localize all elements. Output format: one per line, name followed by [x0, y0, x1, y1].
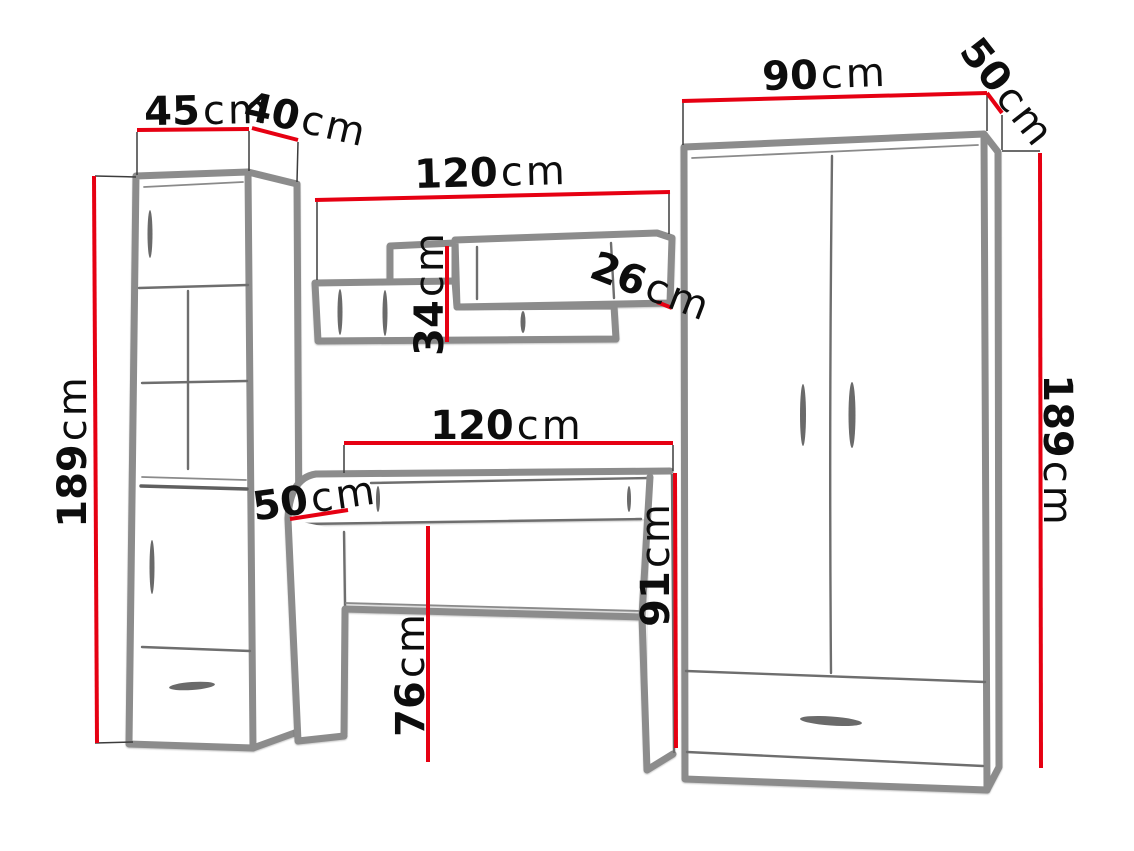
shelf-height-label: 34cm	[410, 230, 450, 356]
desk-left-leg-inner-line	[344, 532, 345, 606]
desk-left-leg-inner-edge	[344, 610, 345, 734]
wardrobe-body	[684, 134, 999, 790]
cabinet-front-side-edge	[248, 172, 253, 748]
tall-cabinet-drawing	[129, 172, 300, 748]
dim-value: 91	[633, 571, 679, 627]
dim-unit: cm	[1034, 461, 1080, 528]
dim-value: 189	[50, 444, 96, 528]
cabinet-lower-door-handle	[150, 540, 155, 594]
dim-value: 189	[1034, 374, 1080, 458]
dim-value: 120	[430, 403, 514, 449]
cabinet-top-door-handle	[148, 210, 153, 258]
dim-unit: cm	[820, 50, 889, 98]
wardrobe-height-label: 189cm	[1037, 374, 1077, 527]
dim-unit: cm	[633, 501, 679, 568]
desk-width-label: 120cm	[430, 406, 583, 446]
dim-unit: cm	[517, 403, 584, 449]
wardrobe-right-door-handle	[849, 382, 856, 448]
cabinet-height-label: 189cm	[53, 374, 93, 527]
dim-value: 34	[407, 300, 453, 356]
desk-height-label: 76cm	[391, 611, 431, 737]
dim-unit: cm	[50, 374, 96, 441]
dim-unit: cm	[388, 611, 434, 678]
wardrobe-left-door-handle	[800, 384, 806, 446]
shelf-width-label: 120cm	[414, 151, 568, 195]
dim-value: 120	[414, 150, 499, 198]
dim-unit: cm	[407, 230, 453, 297]
shelf-lower-tick-3	[521, 311, 526, 333]
dim-value: 45	[144, 88, 200, 135]
shelf-lower-tick-1	[338, 289, 343, 335]
wardrobe-drawing	[684, 134, 999, 790]
wardrobe-front-side-edge	[984, 134, 987, 790]
shelf-lower-tick-2	[383, 290, 388, 336]
dim-value: 76	[388, 681, 434, 737]
furniture-dimension-diagram: 45cm 40cm 189cm 120cm 34cm 26cm 120cm 50…	[0, 0, 1134, 851]
dim-unit: cm	[500, 148, 568, 196]
cabinet-body	[129, 172, 300, 748]
dim-value: 90	[761, 52, 818, 100]
desk-worktop-height-label: 91cm	[636, 501, 676, 627]
desk-slab-tick-right	[627, 486, 631, 512]
dim-unit: cm	[308, 467, 381, 522]
wardrobe-width-label: 90cm	[762, 53, 889, 97]
dim-value: 50	[250, 477, 312, 530]
